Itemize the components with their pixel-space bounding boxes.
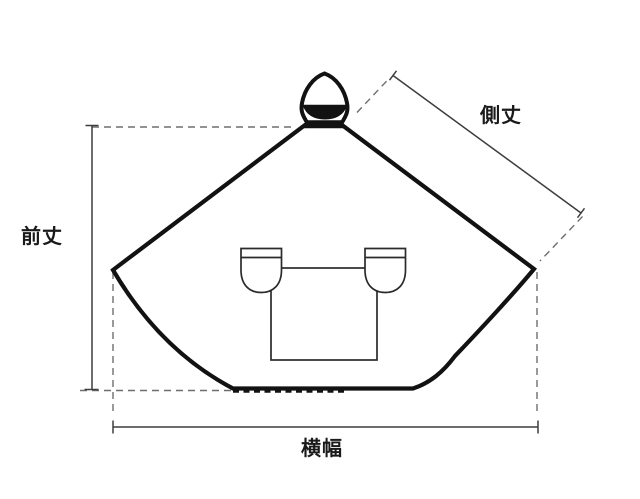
diagram-canvas: 前丈 側丈 横幅 — [0, 0, 640, 499]
side-length-lower-guide-dash — [540, 217, 583, 262]
right-handlebar-cover — [365, 249, 406, 293]
side-length-lower-tick — [578, 208, 585, 217]
width-label: 横幅 — [301, 436, 343, 460]
front-length-label: 前丈 — [21, 224, 63, 248]
side-length-upper-guide-dash — [357, 78, 390, 113]
poncho-outline — [113, 125, 534, 389]
poncho-measurement-diagram: 前丈 側丈 横幅 — [0, 0, 640, 499]
side-length-upper-tick — [390, 71, 397, 80]
left-handlebar-cover — [241, 249, 282, 293]
side-length-label: 側丈 — [479, 104, 522, 127]
